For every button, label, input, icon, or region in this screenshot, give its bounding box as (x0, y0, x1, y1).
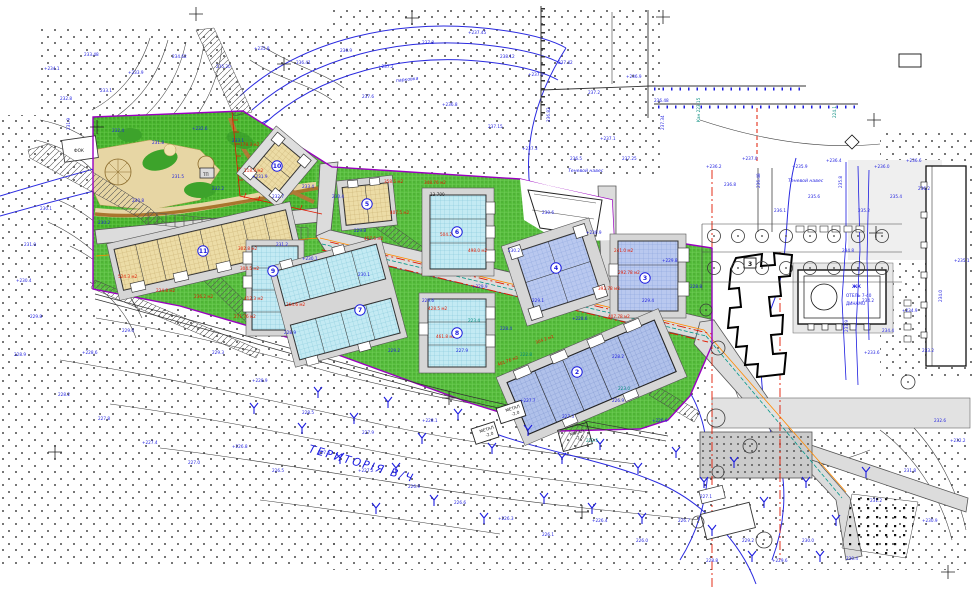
building-number: 11 (199, 248, 208, 255)
existing-floors-marker: 3 (744, 258, 756, 268)
map-annotation: 428.5 м2 (428, 306, 447, 311)
building-number-marker: 6 (452, 227, 462, 237)
map-annotation: 231.5 (172, 174, 184, 179)
building-number: 4 (554, 265, 559, 272)
map-annotation: 234.8 м2 (156, 288, 175, 293)
map-annotation: 228.8 (690, 284, 702, 289)
map-annotation: 229.1 (532, 298, 544, 303)
dimension-label: 13 700 (430, 192, 445, 197)
map-annotation: 392.78 м2 (598, 286, 620, 291)
map-annotation: 118.3 м2 (244, 168, 263, 173)
map-annotation: 232.8 (60, 96, 72, 101)
map-annotation: 230.8 (132, 198, 144, 203)
map-annotation: 236.2 м2 (194, 294, 213, 299)
map-annotation: 237.42 (558, 60, 573, 65)
map-annotation: 236.5 (570, 156, 582, 161)
map-annotation: 237.8 (422, 40, 434, 45)
map-annotation: +226.3 (498, 516, 514, 521)
map-annotation: +236.8 (442, 102, 458, 107)
map-annotation: 407.78 м2 (608, 314, 630, 319)
map-annotation: 227.9 (456, 348, 468, 353)
building-number: 7 (358, 307, 362, 314)
map-annotation: 232.7 (272, 194, 284, 199)
map-annotation: 229.0 (122, 328, 134, 333)
building-number: 6 (455, 229, 459, 236)
map-annotation: 226.9 (408, 484, 420, 489)
map-annotation: 227.0 (188, 460, 200, 465)
map-annotation: +229.6 (772, 558, 788, 563)
building-number-marker: 4 (551, 263, 561, 273)
map-annotation: 226.1 (542, 532, 554, 537)
map-annotation: 229.6 (422, 298, 434, 303)
map-annotation: 228.4 (500, 326, 512, 331)
map-annotation: 230.1 (358, 272, 370, 277)
map-annotation: +230.9 (586, 230, 602, 235)
building-number: 5 (365, 201, 369, 208)
map-annotation: 226.0 (636, 538, 648, 543)
map-annotation: 235.6 (808, 194, 820, 199)
map-annotation: +227.7 (520, 398, 536, 403)
map-annotation: 230.0 (802, 538, 814, 543)
map-annotation: 226.7 (678, 518, 690, 523)
map-annotation: +233.9 (128, 70, 144, 75)
map-annotation: +230.9 (922, 518, 938, 523)
map-annotation: +229.8 (662, 258, 678, 263)
map-annotation: 236.8 (724, 182, 736, 187)
map-annotation: 235.8 (838, 176, 843, 188)
map-annotation: 226.6 (454, 500, 466, 505)
building-number-marker: 3 (640, 273, 650, 283)
east-service-road (712, 398, 970, 428)
map-annotation: 229.2 (742, 538, 754, 543)
map-annotation: +229.9 (472, 284, 488, 289)
building-number: 3 (643, 275, 647, 282)
sand-pit (164, 144, 176, 156)
map-annotation: +236.2 (706, 164, 722, 169)
fok-label: ФОК (74, 148, 84, 153)
map-annotation: 232.6 (934, 418, 946, 423)
tp-label: ТП (202, 172, 209, 177)
map-annotation: +232.2 (950, 438, 966, 443)
map-annotation: 237.2 (588, 90, 600, 95)
map-annotation: 235.20 (216, 64, 231, 69)
map-annotation: 227.1 (700, 494, 712, 499)
map-annotation: +236.4 (826, 158, 842, 163)
building-number-marker: 9 (268, 266, 278, 276)
map-annotation: +228.9 (252, 378, 268, 383)
map-annotation: 229.8 (30, 314, 42, 319)
map-annotation: 524.3 м2 (118, 274, 137, 279)
map-annotation: +237.45 (468, 30, 486, 35)
map-annotation: 231.8 (904, 468, 916, 473)
building-number: 10 (273, 163, 282, 170)
building-number: 8 (455, 330, 459, 337)
map-annotation: +226.4 (592, 518, 608, 523)
map-annotation: +230.1 (302, 256, 318, 261)
map-annotation: 498.0 м2 (468, 248, 487, 253)
map-annotation: +228.6 (82, 350, 98, 355)
map-annotation: 236.48 (756, 173, 761, 188)
map-annotation: +237.2 (378, 64, 394, 69)
map-annotation: 236.9 (340, 48, 352, 53)
map-annotation: 264.6 м2 (286, 302, 305, 307)
map-annotation: 232.4 (112, 128, 124, 133)
map-annotation: 457.5 м2 (364, 236, 383, 241)
map-annotation: 234.2 (862, 298, 874, 303)
existing-slab-building (921, 166, 966, 366)
map-annotation: 226.9 (612, 398, 624, 403)
building-number-marker: 5 (362, 199, 372, 209)
map-annotation: Кан 223.15 (696, 97, 701, 122)
building-number-marker: 7 (355, 305, 365, 315)
map-annotation: +237.3 (522, 146, 538, 151)
building-number-marker: 8 (452, 328, 462, 338)
map-annotation: 229.3 (212, 350, 224, 355)
map-annotation: +227.4 (142, 440, 158, 445)
map-annotation: 233.1 (100, 88, 112, 93)
map-annotation: +235.8 (254, 46, 270, 51)
map-annotation: 233.4 (302, 184, 314, 189)
map-annotation: +235.9 (792, 164, 808, 169)
map-annotation: 235.4 (890, 194, 902, 199)
map-annotation: +234.9 (902, 308, 918, 313)
map-annotation: 222.5 (586, 438, 598, 443)
map-annotation: 234.0 (938, 290, 943, 302)
map-annotation: 230.4 (846, 556, 858, 561)
map-annotation: 224.1 (832, 106, 837, 118)
map-annotation: 292.78 м2 (618, 270, 640, 275)
canopy-label-top: Теневой навес (568, 168, 604, 174)
existing-floors-number: 3 (748, 261, 752, 268)
map-annotation: 227.8 (98, 416, 110, 421)
map-annotation: +234.1 (44, 66, 60, 71)
map-annotation: 234.4 (882, 328, 894, 333)
map-annotation: 237.25 (622, 156, 637, 161)
map-annotation: 231.9 (66, 118, 71, 130)
map-annotation: +227.2 (358, 468, 374, 473)
map-annotation: 227.6 (318, 450, 330, 455)
map-annotation: 236.82 (546, 107, 551, 122)
map-annotation: 412.3 м2 (244, 296, 263, 301)
map-annotation: 230.1 (40, 206, 52, 211)
map-annotation: +230.4 (16, 278, 32, 283)
map-annotation: 233.9 (844, 320, 849, 332)
map-annotation: 304.5 м2 (240, 266, 259, 271)
map-annotation: 236.2 (918, 186, 930, 191)
map-annotation: 228.5 (302, 410, 314, 415)
map-annotation: 237.6 (362, 94, 374, 99)
hotel-label-1: ЖК (852, 284, 861, 290)
canopy-label-right: Теневой навес (788, 178, 824, 184)
map-annotation: 238.12 (500, 54, 515, 59)
map-annotation: +237.1 (600, 136, 616, 141)
building-number-marker: 11 (198, 246, 208, 256)
map-annotation: +232.6 (192, 126, 208, 131)
map-annotation: 236.1 (774, 208, 786, 213)
map-annotation: +226.8 (232, 444, 248, 449)
map-annotation: +236.6 (906, 158, 922, 163)
map-annotation: 228.9 (284, 330, 296, 335)
map-annotation: 237.15 (488, 124, 503, 129)
map-annotation: 348.76 м2 (424, 180, 446, 185)
map-annotation: 234.8 (842, 248, 854, 253)
map-annotation: 231.2 (870, 498, 882, 503)
map-annotation: 236.48 (654, 98, 669, 103)
building-number: 2 (575, 369, 579, 376)
building-number-marker: 10 (272, 161, 282, 171)
map-annotation: 302.8 м2 (238, 246, 257, 251)
building-number: 9 (271, 268, 275, 275)
map-annotation: 228.2 (612, 354, 624, 359)
map-annotation: 407.5 м2 (390, 210, 409, 215)
map-annotation: +233.6 (864, 350, 880, 355)
map-annotation: 233.48 (84, 52, 99, 57)
map-annotation: 229.4 (642, 298, 654, 303)
map-annotation: 228.9 (14, 352, 26, 357)
map-annotation: 223.0 (618, 386, 630, 391)
map-annotation: 235.2 (858, 208, 870, 213)
building-number-marker: 2 (572, 367, 582, 377)
map-annotation: 231.0 (24, 242, 36, 247)
map-annotation: +228.6 (572, 316, 588, 321)
map-annotation: 229.8 (354, 228, 366, 233)
map-annotation: +228.1 (422, 418, 438, 423)
map-annotation: +236.9 (626, 74, 642, 79)
map-annotation: 228.2 (58, 392, 70, 397)
map-annotation: 230.2 (508, 248, 520, 253)
map-annotation: 358.5 м2 (384, 179, 403, 184)
map-annotation: 226.5 (272, 468, 284, 473)
map-annotation: 237.34 (660, 115, 665, 130)
map-annotation: 234.62 (172, 54, 187, 59)
site-plan-drawing: ТЕРИТОРІЯ В/Ч Теневой навес Теневой наве… (0, 0, 972, 592)
map-annotation: 231.2 (276, 242, 288, 247)
map-annotation: +237.0 (742, 156, 758, 161)
map-annotation: 229.2 (388, 348, 400, 353)
map-annotation: 230.4 (332, 194, 344, 199)
map-annotation: 222.8 (520, 352, 532, 357)
map-annotation: 230.6 (542, 210, 554, 215)
map-annotation: +231.9 (252, 174, 268, 179)
map-annotation: 233.2 (922, 348, 934, 353)
map-annotation: 230.2 (98, 220, 110, 225)
map-annotation: 223.4 (468, 318, 480, 323)
map-annotation: 231.8 (152, 140, 164, 145)
map-annotation: 232.2 (212, 186, 224, 191)
map-annotation: 227.3 (562, 414, 574, 419)
map-annotation: 271.76 м2 (234, 314, 256, 319)
map-annotation: +237.9 (528, 72, 544, 77)
map-annotation: 241.0 м2 (614, 248, 633, 253)
map-annotation: 228.8 (706, 558, 718, 563)
small-structure-north (899, 54, 921, 67)
map-annotation: 236.41 (296, 60, 311, 65)
map-annotation: +236.0 (874, 164, 890, 169)
map-annotation: +226.6 (652, 418, 668, 423)
map-annotation: 227.9 (362, 430, 374, 435)
map-annotation: 178.3 м2 (240, 142, 259, 147)
map-annotation: +235.1 (954, 258, 970, 263)
